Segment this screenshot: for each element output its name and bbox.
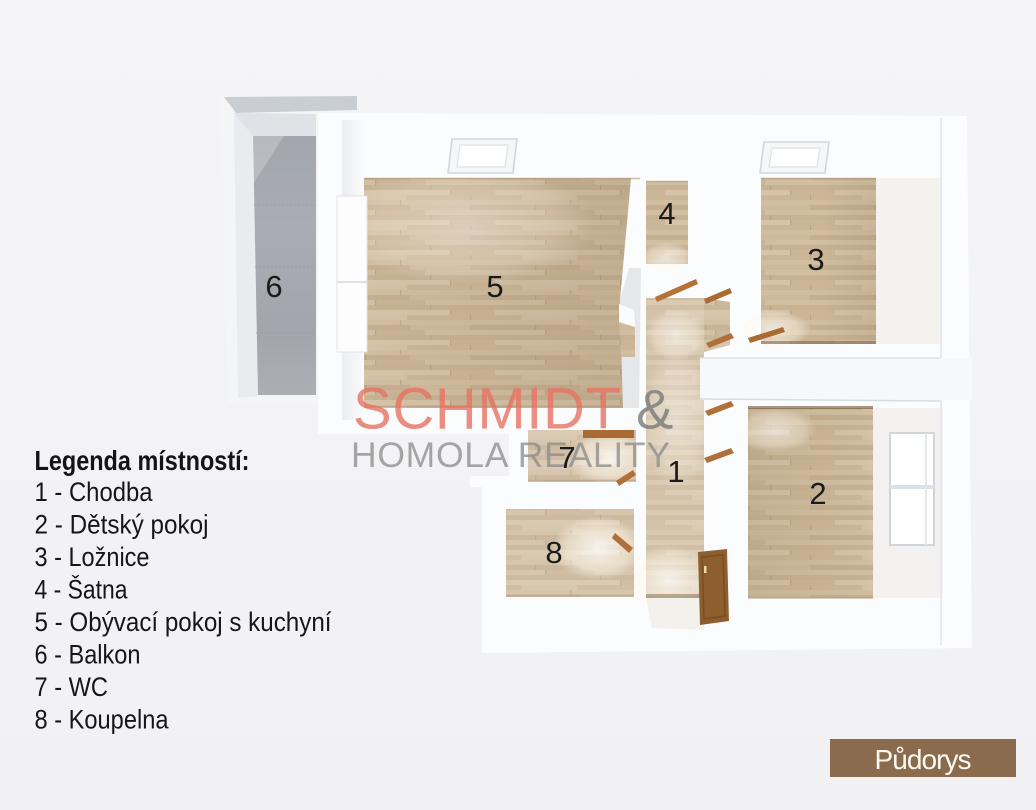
svg-text:3 - Ložnice: 3 - Ložnice	[35, 542, 150, 572]
svg-text:HOMOLA REALITY: HOMOLA REALITY	[351, 435, 670, 475]
svg-text:SCHMIDT: SCHMIDT	[353, 377, 621, 442]
svg-text:4 - Šatna: 4 - Šatna	[35, 574, 129, 605]
svg-text:7: 7	[558, 440, 575, 475]
svg-text:2: 2	[809, 476, 826, 511]
svg-text:6 - Balkon: 6 - Balkon	[35, 640, 141, 670]
svg-text:Legenda místností:: Legenda místností:	[35, 445, 250, 476]
svg-text:5: 5	[486, 269, 503, 304]
svg-text:3: 3	[807, 242, 824, 277]
svg-text:7 - WC: 7 - WC	[35, 672, 109, 702]
svg-text:6: 6	[265, 269, 282, 304]
svg-text:5 - Obývací pokoj s kuchyní: 5 - Obývací pokoj s kuchyní	[35, 607, 332, 637]
svg-text:1 - Chodba: 1 - Chodba	[35, 477, 154, 507]
svg-text:Půdorys: Půdorys	[875, 744, 972, 775]
svg-text:8 - Koupelna: 8 - Koupelna	[35, 705, 170, 735]
svg-text:2 - Dětský pokoj: 2 - Dětský pokoj	[35, 510, 209, 540]
svg-text:4: 4	[658, 196, 675, 231]
svg-text:1: 1	[667, 454, 684, 489]
svg-text:&: &	[636, 378, 673, 441]
svg-text:8: 8	[545, 535, 562, 570]
